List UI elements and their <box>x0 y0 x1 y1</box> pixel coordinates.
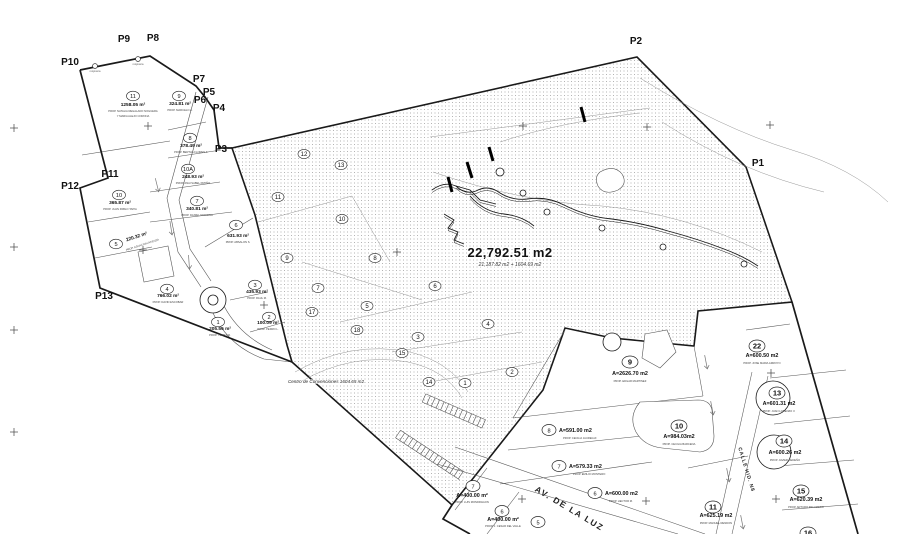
stream-circle-0 <box>496 168 504 176</box>
parcel-owner: PROP. CECILIA JAUREGUI <box>563 436 597 440</box>
parcel-number: 13 <box>773 389 781 398</box>
parcel-number: 16 <box>804 529 812 534</box>
cross-mark-1 <box>10 243 18 251</box>
boundary-point-P6: P6 <box>194 95 207 106</box>
street-label-1: CALLE HID. N8 <box>736 447 755 493</box>
hatch-zone-12: 12 <box>298 149 310 158</box>
parcel-number: 5 <box>536 521 539 527</box>
parcel-owner: PROP. TOMAS R. <box>209 333 231 337</box>
zone-number: 18 <box>354 328 361 334</box>
site-plan-svg: mojoneramojonera 22,792.51 m2 21,187.82 … <box>0 0 900 534</box>
parcel-number: 10 <box>116 193 122 199</box>
parcel-left-10: 10365.87 m²PROP. JUAN PABLO TAPIA <box>103 190 137 211</box>
hatch-zone-10: 10 <box>336 214 348 223</box>
hatch-zone-11: 11 <box>272 192 284 201</box>
zone-number: 15 <box>399 351 406 357</box>
zone-number: 11 <box>275 195 282 201</box>
cross-mark-0 <box>10 124 18 132</box>
cross-mark-10 <box>260 301 268 309</box>
parcel-area: A=600.26 m2 <box>769 450 802 456</box>
boundary-point-P8: P8 <box>147 33 160 44</box>
parcel-sub-16-4: 16 <box>800 527 816 534</box>
hatch-zone-3: 3 <box>412 332 424 341</box>
centro-convenciones-label: Centro de Convenciones 1604.65 m2 <box>288 379 365 384</box>
parcel-owner: PROP. NATALIA REGALADO NOGUERA <box>108 109 158 113</box>
boundary-point-P3: P3 <box>215 144 228 155</box>
parcel-sub-15-3: 15A=620.39 m2PROP. ARTURO PALOMERO <box>788 485 824 509</box>
hatch-zone-8: 8 <box>369 253 381 262</box>
parcel-left-9: 9324.81 m²PROP. MARCELO A. <box>167 91 192 112</box>
parcel-line-26 <box>746 324 790 330</box>
boundary-point-P11: P11 <box>101 169 119 180</box>
bold-boundary-0 <box>80 56 232 148</box>
cross-mark-4 <box>144 122 152 130</box>
parcel-number: 6 <box>234 223 237 229</box>
parcel-sub-6-12: 6A=400.00 m²PROP. J. CESAR DEL VALLE <box>485 506 521 529</box>
parcel-owner: PROP. MANUEL RENDON <box>700 521 732 525</box>
parcel-line-4 <box>88 212 150 222</box>
parcel-area: 340.81 m² <box>186 206 208 212</box>
parcel-area: 248.93 m² <box>182 174 204 180</box>
monument-label: mojonera <box>133 62 144 66</box>
parcel-area: A=620.39 m2 <box>790 497 823 503</box>
parcel-owner: PROP. BERTHA FLORES F. <box>174 150 208 154</box>
parcel-sub-6-10: 6A=600.00 m2PROP. HECTOR M. <box>588 488 638 504</box>
arrow-glyph <box>702 355 710 370</box>
parcel-area: A=625.19 m2 <box>700 513 733 519</box>
cross-mark-13 <box>767 369 775 377</box>
parcel-sub-5-13: 5 <box>531 517 545 528</box>
parcel-line-0 <box>82 141 170 155</box>
parcel-owner: PROP. MARCELO A. <box>167 108 192 112</box>
stream-circle-4 <box>660 244 666 250</box>
parcel-owner: PROP. ARTURO PALOMERO <box>788 505 824 509</box>
hatch-zone-7: 7 <box>312 283 324 292</box>
parcel-owner: PROP. JUAN PABLO TAPIA <box>103 207 137 211</box>
parcel-owner: PROP. DANIEL NORIEGA <box>181 213 213 217</box>
parcel-area: A=601.31 m2 <box>763 401 796 407</box>
parcel-owner: PROP. ABSALON S. <box>226 240 251 244</box>
boundary-point-P1: P1 <box>752 158 765 169</box>
parcel-area: A=591.00 m2 <box>559 428 592 434</box>
hatch-zone-15: 15 <box>396 348 408 357</box>
building-square <box>138 246 174 282</box>
parcel-area: A=600.50 m2 <box>746 353 779 359</box>
parcel-area: 766.02 m² <box>157 293 179 299</box>
hatch-zone-18: 18 <box>351 325 363 334</box>
hatch-zone-6: 6 <box>429 281 441 290</box>
street-arrow-5 <box>724 468 732 483</box>
parcel-area: 205.56 m² <box>209 326 231 332</box>
cross-mark-12 <box>642 497 650 505</box>
parcel-owner: PROP. RAUL M. <box>247 296 267 300</box>
parcel-number: 22 <box>753 342 761 351</box>
parcel-number: 11 <box>709 503 717 512</box>
parcel-area: 365.87 m² <box>109 200 131 206</box>
parcel-sub-22-0: 22A=600.50 m2PROP. JOSE MARIA ARROYO <box>743 340 780 365</box>
arrow-glyph <box>738 515 746 530</box>
parcel-owner: PROP. LUIS MONDRAGON <box>455 500 489 504</box>
zone-number: 14 <box>426 380 433 386</box>
parcel-area: 435.93 m² <box>246 289 268 295</box>
stream-circle-3 <box>599 225 605 231</box>
parcel-sub-7-9: 7A=579.33 m2PROP. EMILIO MONTERO <box>552 461 605 477</box>
feature-circle-2 <box>603 333 621 351</box>
bold-boundary-2 <box>443 505 470 534</box>
monument-label: mojonera <box>90 69 101 73</box>
hatch-zone-5: 5 <box>361 301 373 310</box>
boundary-point-P9: P9 <box>118 34 131 45</box>
feature-circle-4 <box>208 295 218 305</box>
parcel-line-17 <box>774 416 850 424</box>
parcel-area: 220.32 m² <box>125 231 148 244</box>
parcel-area: A=579.33 m2 <box>569 464 602 470</box>
parcel-number: 10 <box>675 422 683 431</box>
parcel-area: 631.93 m² <box>227 233 249 239</box>
monument-icon <box>93 64 98 69</box>
parcel-left-1: 1205.56 m²PROP. TOMAS R. <box>209 317 231 337</box>
parcel-area: 324.81 m² <box>169 101 191 107</box>
street-arrow-0 <box>153 178 161 193</box>
parcel-area: A=984.03m2 <box>663 434 694 440</box>
parcel-number: 10A <box>183 167 193 173</box>
monument-icon <box>136 57 141 62</box>
parcel-owner: PROP. PEDRO L. <box>257 327 279 331</box>
hatch-zone-2: 2 <box>506 367 518 376</box>
parcel-number: 8 <box>188 136 191 142</box>
hatch-zone-13: 13 <box>335 160 347 169</box>
parcel-number: 3 <box>253 283 256 289</box>
hatch-zone-1: 1 <box>459 378 471 387</box>
stream-circle-1 <box>520 190 526 196</box>
cross-mark-3 <box>10 428 18 436</box>
parcel-number: 6 <box>500 510 503 516</box>
parcel-line-25 <box>694 346 703 396</box>
parcel-number: 7 <box>195 199 198 205</box>
parcel-owner: PROP. HECTOR M. <box>609 499 633 503</box>
parcel-line-14 <box>716 372 752 534</box>
parcel-area: A=400.00 m² <box>487 517 519 523</box>
parcel-sub-11-5: 11A=625.19 m2PROP. MANUEL RENDON <box>700 501 733 525</box>
parcel-area: 378.49 m² <box>180 143 202 149</box>
parcel-owner: Y MARIA ALEJO CORONA <box>117 114 150 118</box>
cross-mark-14 <box>772 495 780 503</box>
cross-mark-2 <box>10 326 18 334</box>
boundary-point-P4: P4 <box>213 103 226 114</box>
parcel-sub-8-8: 8A=591.00 m2PROP. CECILIA JAUREGUI <box>542 425 597 441</box>
parcel-number: 11 <box>130 94 136 100</box>
parcel-area: 100.09 m² <box>257 320 279 326</box>
parcel-sub-9-6: 9A=2626.70 m2PROP. EDGAR MARTINEZ <box>612 356 648 383</box>
street-arrow-6 <box>738 515 746 530</box>
parcel-number: 15 <box>797 487 805 496</box>
parcel-owner: PROP. JOSE MARIA ARROYO <box>743 361 780 365</box>
parcel-left-5: 5220.32 m²PROP. ASUNCION ATIENZA <box>110 231 160 252</box>
boundary-point-P12: P12 <box>61 181 79 192</box>
street-arrow-3 <box>702 355 710 370</box>
arrow-glyph <box>724 468 732 483</box>
parcel-number: 7 <box>557 465 560 471</box>
parcel-line-16 <box>770 370 846 378</box>
zone-number: 13 <box>338 163 345 169</box>
parcel-number: 6 <box>593 492 596 498</box>
hatch-zone-17: 17 <box>306 307 318 316</box>
hatch-zone-14: 14 <box>423 377 435 386</box>
parcel-area: A=600.00 m2 <box>605 491 638 497</box>
stream-circle-5 <box>741 261 747 267</box>
parcel-left-3: 3435.93 m²PROP. RAUL M. <box>246 280 268 300</box>
stream-circle-2 <box>544 209 550 215</box>
zone-number: 12 <box>301 152 308 158</box>
parcel-left-2: 2100.09 m²PROP. PEDRO L. <box>257 312 279 331</box>
parcel-area: A=2626.70 m2 <box>612 371 648 377</box>
parcel-owner: PROP. EMILIO MONTERO <box>573 472 605 476</box>
parcel-number: 7 <box>471 485 474 491</box>
parcel-number: 5 <box>114 242 117 248</box>
parcel-owner: PROP. EDGAR MARTINEZ <box>614 379 647 383</box>
boundary-point-P10: P10 <box>61 57 79 68</box>
parcel-path-5 <box>596 168 624 192</box>
parcel-line-13 <box>688 456 748 468</box>
parcel-owner: PROP. DAVID ESCOBAR <box>153 300 184 304</box>
parcel-number: 9 <box>177 94 180 100</box>
parcel-area: A=400.00 m² <box>456 493 488 499</box>
boundary-point-P13: P13 <box>95 291 113 302</box>
parcel-number: 14 <box>780 437 789 446</box>
hatch-zone-9: 9 <box>281 253 293 262</box>
parcel-owner: PROP. CECILIA BARCENA <box>663 442 696 446</box>
parcel-owner: PROP. JUAN LORENZO V. <box>763 409 796 413</box>
zone-number: 17 <box>309 310 316 316</box>
site-plan-page: mojoneramojonera 22,792.51 m2 21,187.82 … <box>0 0 900 534</box>
arrow-glyph <box>153 178 161 193</box>
zone-number: 10 <box>339 217 346 223</box>
parcel-number: 4 <box>165 287 168 293</box>
parcel-number: 9 <box>628 358 632 367</box>
parcel-left-11: 111258.05 m²PROP. NATALIA REGALADO NOGUE… <box>108 91 158 118</box>
boundary-point-P7: P7 <box>193 74 206 85</box>
parcel-number: 8 <box>547 429 550 435</box>
cross-mark-11 <box>518 495 526 503</box>
hatch-zone-4: 4 <box>482 319 494 328</box>
total-area-label: 22,792.51 m2 <box>467 245 552 260</box>
parcel-left-4: 4766.02 m²PROP. DAVID ESCOBAR <box>153 284 184 304</box>
total-area-sub-label: 21,187.82 m2 + 1604.69 m2 <box>478 262 542 268</box>
cross-mark-8 <box>766 121 774 129</box>
parcel-owner: PROP. J. CESAR DEL VALLE <box>485 524 521 528</box>
parcel-number: 1 <box>216 320 219 326</box>
parcel-area: 1258.05 m² <box>121 102 146 108</box>
boundary-point-P2: P2 <box>630 36 643 47</box>
